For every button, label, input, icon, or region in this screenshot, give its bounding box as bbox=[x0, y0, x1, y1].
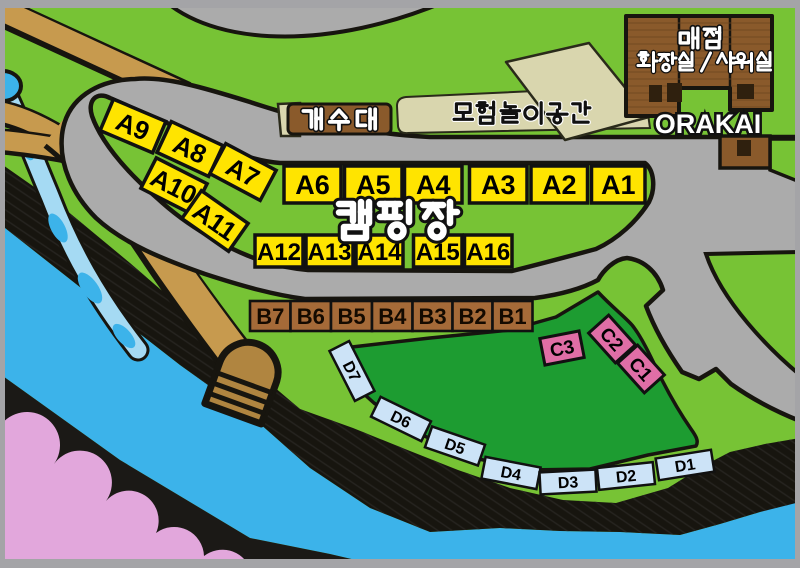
svg-text:B7: B7 bbox=[256, 304, 284, 329]
svg-text:A12: A12 bbox=[257, 239, 301, 266]
svg-text:A16: A16 bbox=[466, 239, 510, 266]
svg-text:A6: A6 bbox=[295, 170, 330, 200]
svg-text:B6: B6 bbox=[297, 304, 325, 329]
svg-text:B4: B4 bbox=[378, 304, 407, 329]
svg-text:A5: A5 bbox=[356, 170, 391, 200]
svg-text:B5: B5 bbox=[337, 304, 365, 329]
svg-text:A1: A1 bbox=[601, 170, 636, 200]
svg-text:B2: B2 bbox=[458, 304, 486, 329]
svg-text:ORAKAI: ORAKAI bbox=[655, 109, 762, 139]
svg-text:D2: D2 bbox=[615, 468, 637, 487]
svg-text:A3: A3 bbox=[481, 170, 516, 200]
svg-text:D1: D1 bbox=[674, 456, 697, 476]
svg-text:B3: B3 bbox=[418, 304, 446, 329]
svg-text:A2: A2 bbox=[542, 170, 577, 200]
svg-text:A4: A4 bbox=[416, 170, 451, 200]
svg-text:D3: D3 bbox=[557, 474, 578, 492]
svg-text:B1: B1 bbox=[498, 304, 526, 329]
